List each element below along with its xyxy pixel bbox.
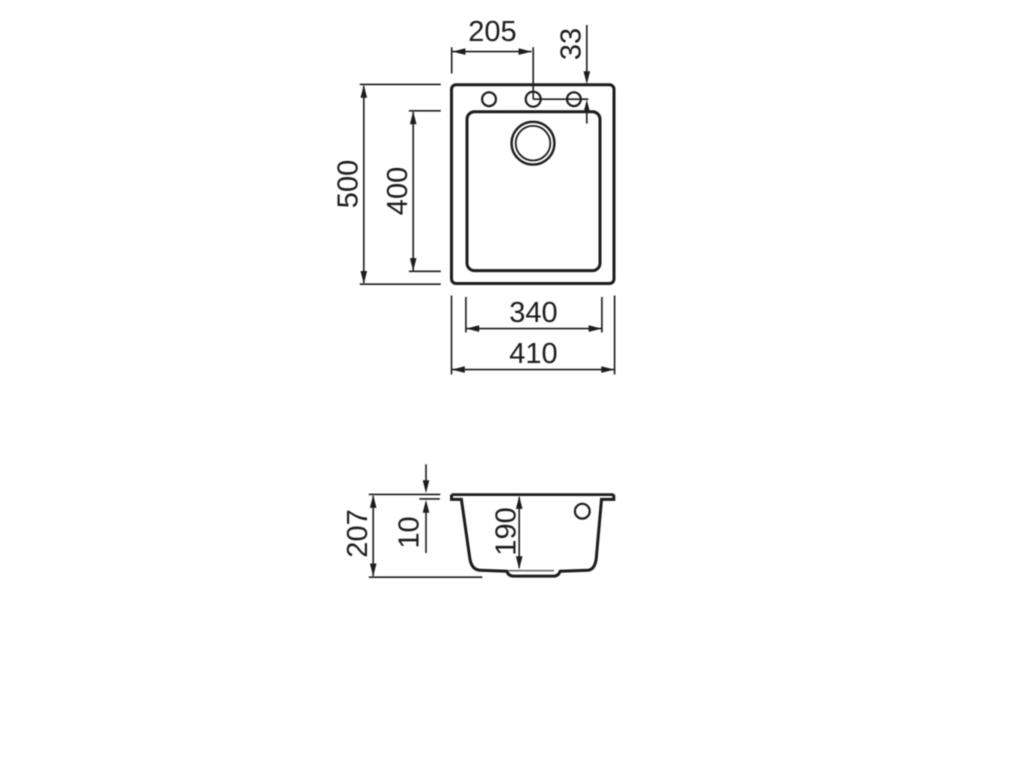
svg-text:207: 207	[342, 509, 374, 557]
svg-text:33: 33	[556, 28, 588, 60]
svg-text:400: 400	[382, 167, 414, 215]
svg-text:190: 190	[490, 507, 522, 555]
svg-text:410: 410	[509, 338, 557, 370]
svg-text:10: 10	[394, 516, 426, 548]
svg-text:500: 500	[333, 160, 365, 208]
svg-text:205: 205	[468, 16, 516, 48]
svg-text:340: 340	[509, 297, 557, 329]
